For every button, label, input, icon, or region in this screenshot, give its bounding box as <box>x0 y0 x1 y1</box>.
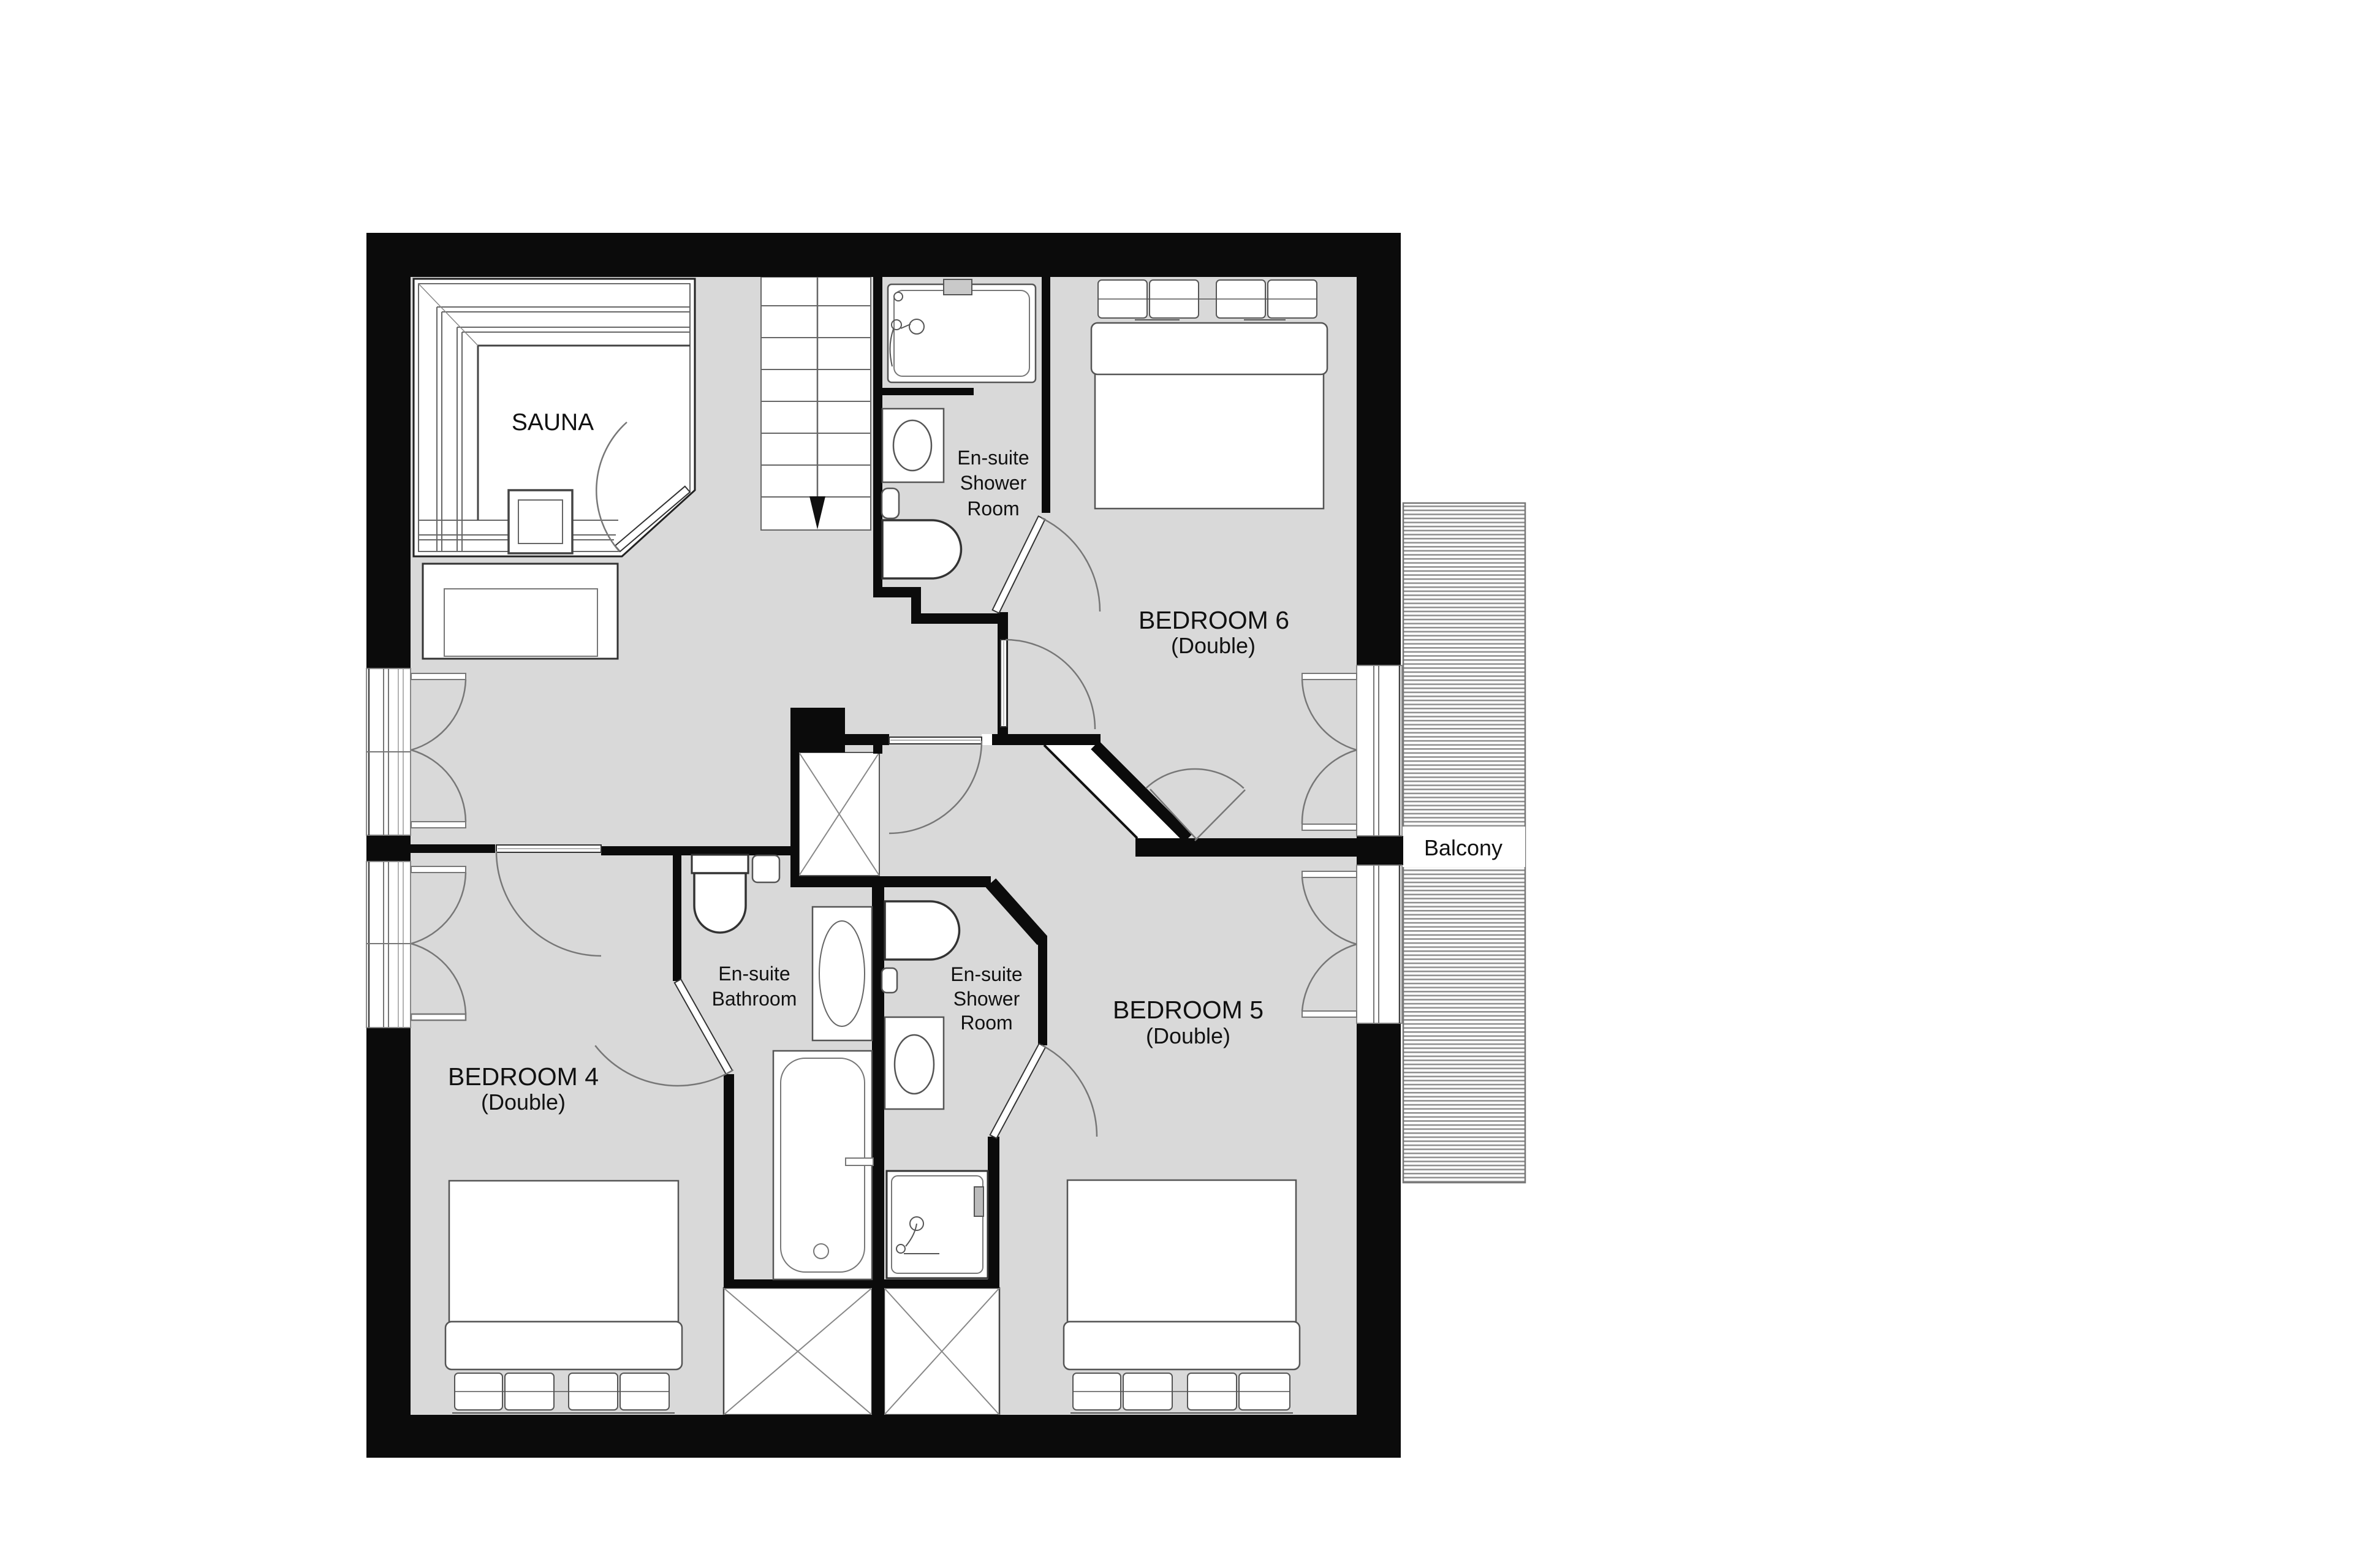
svg-text:Bathroom: Bathroom <box>712 988 797 1010</box>
svg-text:(Double): (Double) <box>1146 1023 1230 1048</box>
svg-text:Balcony: Balcony <box>1424 835 1502 860</box>
svg-text:Shower: Shower <box>960 472 1027 494</box>
svg-text:(Double): (Double) <box>1171 633 1256 658</box>
svg-text:En-suite: En-suite <box>718 963 790 985</box>
svg-text:BEDROOM 4: BEDROOM 4 <box>448 1062 599 1091</box>
svg-text:Room: Room <box>967 498 1019 520</box>
svg-text:En-suite: En-suite <box>957 447 1029 469</box>
svg-text:Room: Room <box>960 1012 1012 1034</box>
svg-text:(Double): (Double) <box>481 1089 566 1115</box>
svg-text:BEDROOM 5: BEDROOM 5 <box>1113 996 1264 1024</box>
svg-text:Shower: Shower <box>953 988 1020 1010</box>
svg-text:En-suite: En-suite <box>950 963 1022 985</box>
svg-text:BEDROOM 6: BEDROOM 6 <box>1139 606 1289 634</box>
svg-text:SAUNA: SAUNA <box>512 409 594 436</box>
